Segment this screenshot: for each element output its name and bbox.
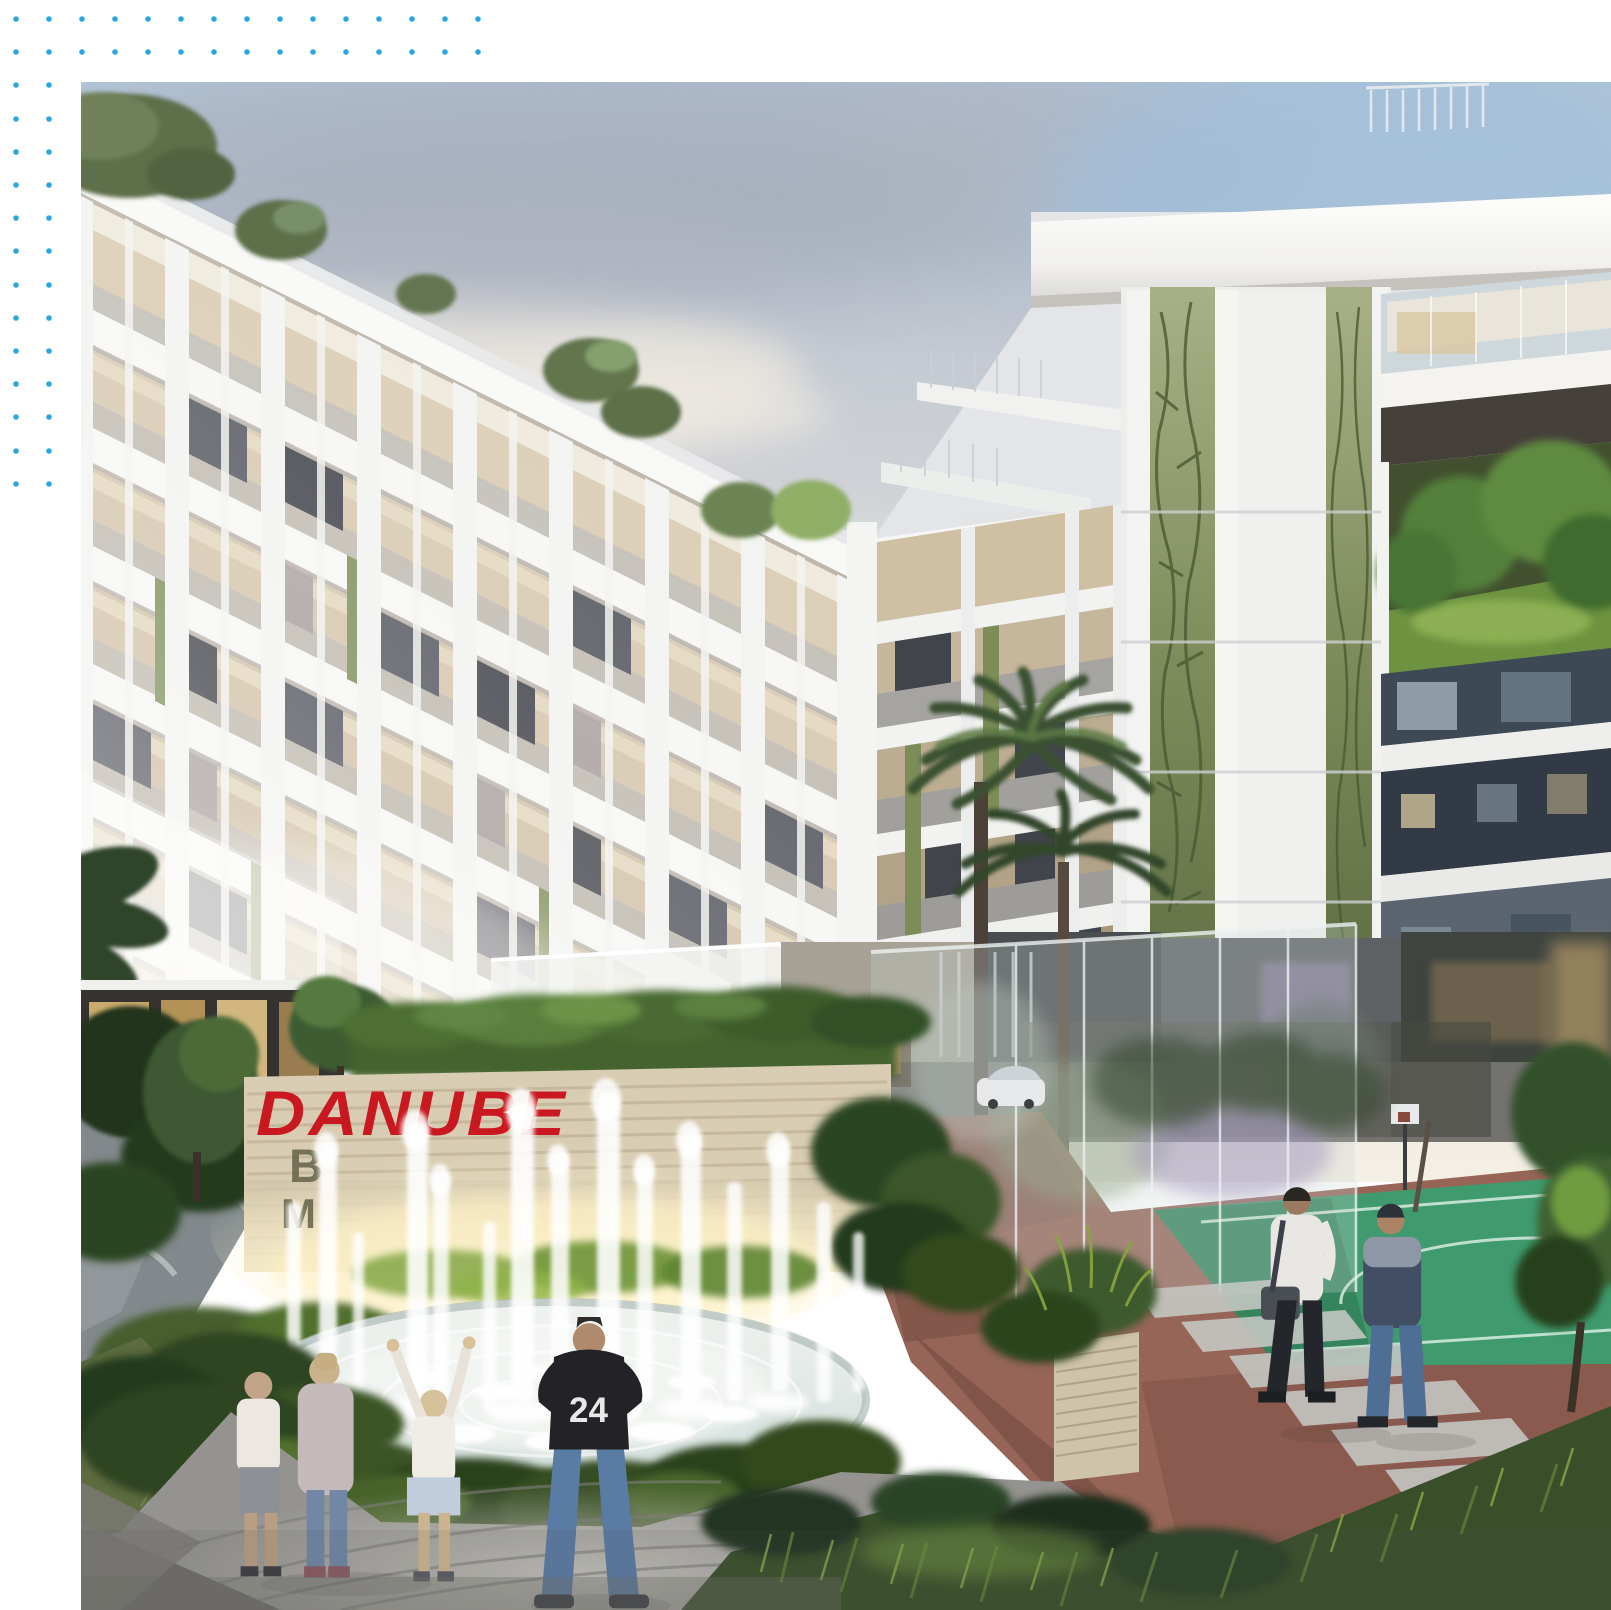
svg-text:24: 24: [569, 1391, 608, 1430]
